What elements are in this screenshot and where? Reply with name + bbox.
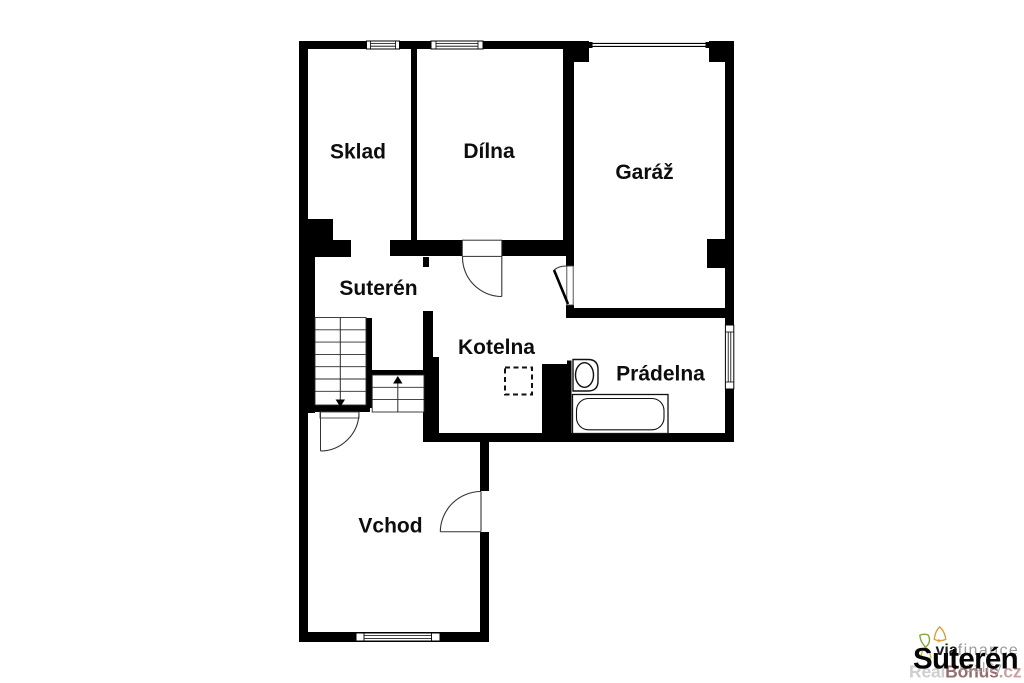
svg-text:Suterén: Suterén [339, 277, 417, 300]
svg-text:Suterén: Suterén [913, 642, 1018, 675]
svg-text:Prádelna: Prádelna [616, 363, 705, 386]
svg-text:Vchod: Vchod [358, 515, 422, 538]
svg-text:Sklad: Sklad [330, 141, 386, 164]
svg-text:Kotelna: Kotelna [458, 336, 535, 359]
svg-text:Dílna: Dílna [463, 140, 515, 163]
svg-text:Garáž: Garáž [615, 161, 673, 184]
